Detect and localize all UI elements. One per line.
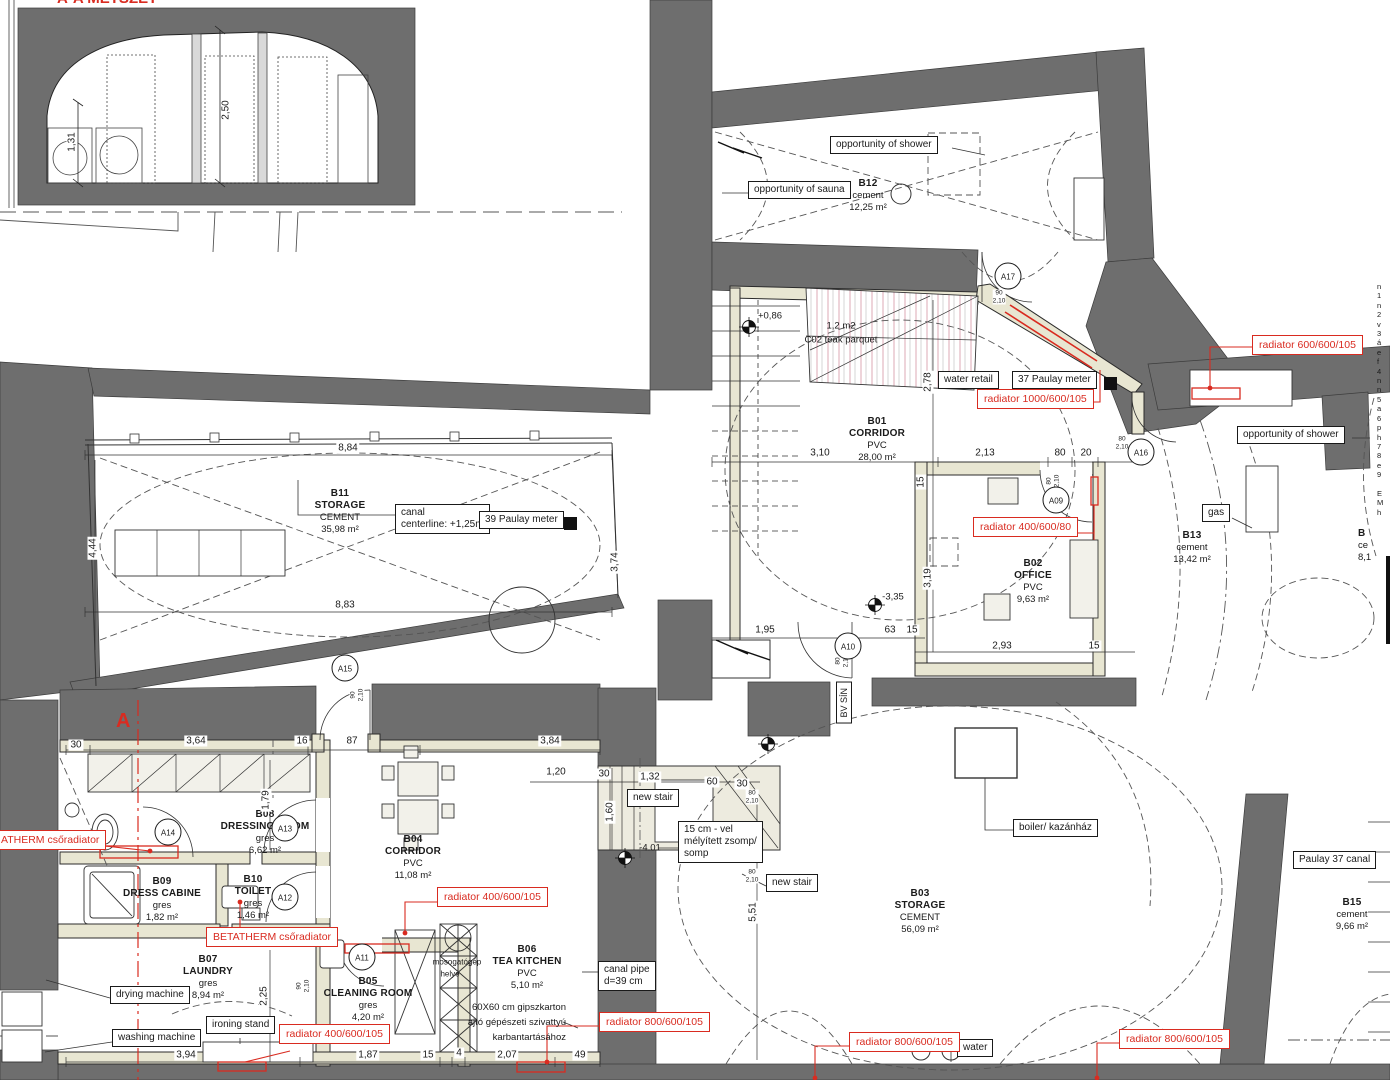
annotation-canal-pipe: canal piped=39 cm [598, 961, 656, 991]
dim-label: 8,84 [336, 443, 359, 454]
dim-label: 63 [882, 625, 897, 636]
dim-label: 49 [572, 1050, 587, 1061]
dim-label: 1,31 [67, 130, 78, 153]
dim-label: 1,95 [753, 625, 776, 636]
note-teak-parquet: C02 teak parquet [805, 335, 878, 346]
room-label-b07: B07LAUNDRYgres8,94 m² [183, 954, 233, 1002]
door-tag-a10: A10 [835, 633, 862, 660]
dim-label: 3,64 [184, 736, 207, 747]
dim-label: 30 [596, 769, 611, 780]
radiator-label-800-1: radiator 800/600/105 [599, 1012, 710, 1032]
annotation-boiler: boiler/ kazánház [1013, 819, 1098, 837]
edge-notes-column: n 1 n 2 v 3 á e f 4 n n 5 a 6 p h 7 8 e … [1377, 282, 1383, 517]
dim-label: 2,13 [973, 448, 996, 459]
dim-label: 15 [904, 625, 919, 636]
staircase [712, 300, 800, 556]
dim-label: 3,10 [808, 448, 831, 459]
annotation-ironing-stand: ironing stand [206, 1016, 275, 1034]
radiator-label-800-3: radiator 800/600/105 [1119, 1029, 1230, 1049]
radiator-label-atherm: ATHERM csőradiator [0, 830, 106, 850]
dim-label: 4 [454, 1048, 464, 1059]
annotation-opportunity-sauna: opportunity of sauna [748, 181, 851, 199]
dim-label: 3,84 [538, 736, 561, 747]
door-tag-a12: A12 [272, 884, 299, 911]
dim-label: 20 [1078, 448, 1093, 459]
door-dim: 902,10 [993, 290, 1006, 305]
annotation-37-paulay-meter: 37 Paulay meter [1012, 371, 1097, 389]
annotation-bv-sin: BV SÍN [836, 682, 852, 724]
dim-label: 1,32 [638, 772, 661, 783]
dim-label: 1,87 [356, 1050, 379, 1061]
door-dim: 802,10 [1116, 436, 1129, 451]
dim-label: 1,79 [261, 788, 272, 811]
door-dim: 802,10 [746, 869, 759, 884]
note-mosogatogep: mosogatógép [433, 958, 481, 967]
dim-label: 2,25 [259, 984, 270, 1007]
dim-label: 2,07 [495, 1050, 518, 1061]
annotation-new-stair-1: new stair [627, 789, 679, 807]
room-label-b11: B11STORAGECEMENT35,98 m² [315, 488, 366, 536]
annotation-canal-centerline: canalcenterline: +1,25m [395, 504, 490, 534]
room-label-b01: B01CORRIDORPVC28,00 m² [849, 416, 905, 464]
level-label-086: +0,86 [758, 311, 782, 322]
dim-label: 2,78 [923, 370, 934, 393]
door-dim: 902,10 [296, 980, 311, 993]
door-tag-a09: A09 [1043, 487, 1070, 514]
dim-label: 87 [344, 736, 359, 747]
dim-label: 5,51 [748, 900, 759, 923]
level-label-401: -4.01 [639, 843, 661, 854]
dim-label: 8,83 [333, 600, 356, 611]
annotation-washing-machine: washing machine [112, 1029, 201, 1047]
annotation-39-paulay-meter: 39 Paulay meter [479, 511, 564, 529]
room-label-b10: B10TOILETgres1,46 m² [235, 874, 272, 922]
annotation-drying-machine: drying machine [110, 986, 190, 1004]
annotation-new-stair-2: new stair [766, 874, 818, 892]
annotation-gas: gas [1202, 504, 1230, 522]
dim-label: 4,44 [88, 536, 99, 559]
room-label-b04: B04CORRIDORPVC11,08 m² [385, 834, 441, 882]
dim-label: 1,60 [605, 800, 616, 823]
annotation-opportunity-shower-1: opportunity of shower [830, 136, 938, 154]
dim-label: 3,19 [923, 566, 934, 589]
dim-label: 2,50 [221, 98, 232, 121]
dim-label: 15 [1086, 641, 1101, 652]
room-label-b13: B13cement13,42 m² [1173, 530, 1211, 566]
door-tag-a13: A13 [272, 815, 299, 842]
note-teak-area: 1,2 m2 [826, 321, 855, 332]
dim-label: 30 [734, 779, 749, 790]
floor-plan-page: A-A METSZET A B11STORAGECEMENT35,98 m² B… [0, 0, 1390, 1080]
room-label-b09: B09DRESS CABINEgres1,82 m² [123, 876, 201, 924]
annotation-opportunity-shower-2: opportunity of shower [1237, 426, 1345, 444]
dim-label: 3,94 [174, 1050, 197, 1061]
radiator-label-400-1: radiator 400/600/105 [437, 887, 548, 907]
door-tag-a14: A14 [155, 819, 182, 846]
dim-label: 15 [420, 1050, 435, 1061]
door-tag-a15: A15 [332, 655, 359, 682]
door-tag-a17: A17 [995, 263, 1022, 290]
dim-label: 1,20 [544, 767, 567, 778]
radiator-label-600: radiator 600/600/105 [1252, 335, 1363, 355]
level-label-335: -3,35 [882, 592, 904, 603]
room-label-b14: Bce8,1 [1358, 528, 1371, 564]
annotation-water: water [957, 1039, 993, 1057]
annotation-water-retail: water retail [938, 371, 999, 389]
door-dim: 802,10 [746, 790, 759, 805]
drawing-title: A-A METSZET [57, 0, 157, 7]
radiator-label-1000: radiator 1000/600/105 [977, 389, 1094, 409]
dim-label: 16 [294, 736, 309, 747]
room-label-b05: B05CLEANING ROOMgres4,20 m² [324, 976, 413, 1024]
annotation-paulay-37-canal: Paulay 37 canal [1293, 851, 1376, 869]
dim-label: 2,93 [990, 641, 1013, 652]
room-label-b06: B06TEA KITCHENPVC5,10 m² [492, 944, 561, 992]
door-dim: 902,10 [350, 689, 365, 702]
room-label-b12: B12cement12,25 m² [849, 178, 887, 214]
section-marker-a: A [116, 710, 130, 733]
radiator-label-400-2: radiator 400/600/105 [279, 1024, 390, 1044]
dim-label: 30 [68, 740, 83, 751]
dim-label: 15 [916, 474, 927, 489]
dim-label: 3,74 [610, 550, 621, 573]
radiator-label-800-2: radiator 800/600/105 [849, 1032, 960, 1052]
door-dim: 802,10 [1046, 475, 1061, 488]
room-label-b03: B03STORAGECEMENT56,09 m² [895, 888, 946, 936]
note-helye: helye [440, 970, 459, 979]
radiator-label-400-80: radiator 400/600/80 [973, 517, 1078, 537]
dim-label: 80 [1052, 448, 1067, 459]
door-tag-a11: A11 [349, 944, 376, 971]
room-label-b02: B02OFFICEPVC9,63 m² [1014, 558, 1052, 606]
note-gipszkarton: 60X60 cm gipszkartonajtó gépészeti sziva… [440, 1000, 566, 1045]
radiator-label-betatherm: BETATHERM csőradiator [206, 927, 338, 947]
annotation-zsomp: 15 cm - velmélyített zsomp/somp [678, 821, 763, 863]
dim-label: 60 [704, 777, 719, 788]
door-tag-a16: A16 [1128, 439, 1155, 466]
room-label-b15: B15cement9,66 m² [1336, 897, 1368, 933]
